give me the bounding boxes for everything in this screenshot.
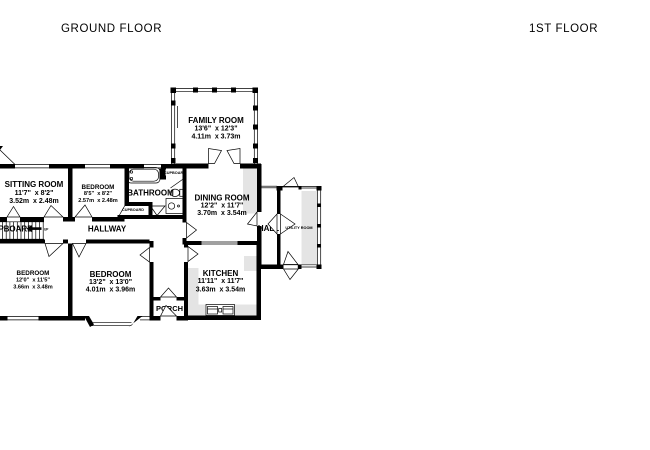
svg-text:13'6" x 12'3": 13'6" x 12'3": [194, 126, 237, 133]
svg-text:BEDROOM: BEDROOM: [90, 270, 132, 279]
svg-text:3.70m x 3.54m: 3.70m x 3.54m: [197, 210, 246, 217]
svg-text:3.52m x 2.48m: 3.52m x 2.48m: [9, 198, 58, 205]
svg-text:DINING ROOM: DINING ROOM: [194, 193, 249, 202]
svg-text:2.57m x 2.48m: 2.57m x 2.48m: [78, 198, 118, 204]
svg-text:UTILITY ROOM: UTILITY ROOM: [285, 226, 312, 230]
svg-text:11'7" x 8'2": 11'7" x 8'2": [15, 190, 54, 197]
svg-text:HALLWAY: HALLWAY: [88, 225, 127, 234]
svg-text:SITTING ROOM: SITTING ROOM: [5, 180, 64, 189]
svg-text:8'5" x 8'2": 8'5" x 8'2": [84, 191, 113, 197]
svg-text:3.66m x 3.48m: 3.66m x 3.48m: [13, 284, 53, 290]
svg-text:11'11" x 11'7": 11'11" x 11'7": [198, 278, 244, 285]
svg-text:4.01m x 3.96m: 4.01m x 3.96m: [86, 286, 135, 293]
svg-text:13'2" x 13'0": 13'2" x 13'0": [89, 279, 132, 286]
svg-text:BATHROOM: BATHROOM: [127, 189, 174, 198]
svg-text:CUPBOARD: CUPBOARD: [122, 208, 144, 212]
svg-text:CUPBOARD: CUPBOARD: [0, 224, 33, 233]
svg-text:12'0" x 11'5": 12'0" x 11'5": [16, 278, 50, 284]
svg-text:KITCHEN: KITCHEN: [203, 269, 239, 278]
svg-text:4.11m x 3.73m: 4.11m x 3.73m: [191, 133, 240, 140]
svg-text:FAMILY ROOM: FAMILY ROOM: [188, 116, 244, 125]
svg-text:BEDROOM: BEDROOM: [82, 184, 115, 191]
svg-text:12'2" x 11'7": 12'2" x 11'7": [201, 203, 244, 210]
svg-text:3.63m x 3.54m: 3.63m x 3.54m: [196, 287, 245, 294]
svg-text:BEDROOM: BEDROOM: [17, 270, 50, 277]
svg-text:1ST FLOOR: 1ST FLOOR: [529, 23, 598, 35]
svg-text:GROUND FLOOR: GROUND FLOOR: [61, 23, 162, 35]
